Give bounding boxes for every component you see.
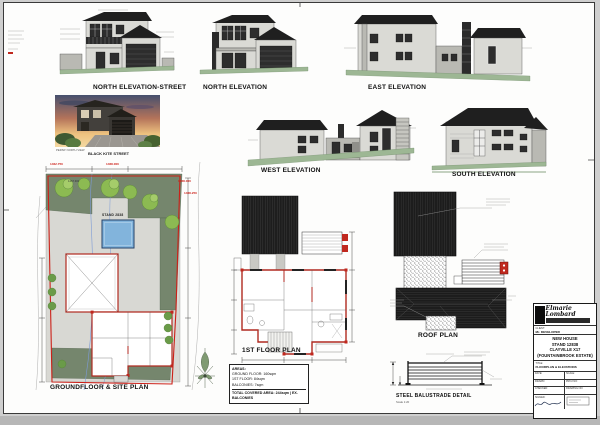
roof-plan-drawing xyxy=(388,188,518,333)
field-label: DRAWN: xyxy=(535,380,563,383)
field-label: PROJ NO: xyxy=(566,380,595,383)
label-roof-plan: ROOF PLAN xyxy=(418,332,458,339)
field-label: DATE: xyxy=(535,372,563,375)
areas-line: BALCONIES: 7sqm xyxy=(232,383,306,388)
project-line: (FOUNTAINBROOK ESTATE) xyxy=(534,353,596,359)
east-elevation-drawing xyxy=(342,8,534,88)
field-label: SCALE: xyxy=(566,372,595,375)
label-balustrade-detail: STEEL BALUSTRADE DETAIL xyxy=(396,393,472,399)
logo-subtext-bars xyxy=(546,318,597,323)
client-name: Mr. DEVELOPER xyxy=(536,330,560,334)
site-plan-drawing: STAND 2838 1462.750 1468.000 1 xyxy=(32,158,210,393)
logo-script-text: Elmarie Lombard xyxy=(546,306,597,318)
svg-text:1462.750: 1462.750 xyxy=(50,162,63,166)
north-arrow-icon xyxy=(192,346,218,390)
perspective-render-photo xyxy=(55,95,160,147)
project-row: NEW HOUSE STAND 12838 CLAYVILLE X17 (FOU… xyxy=(534,335,596,361)
title-block-fields: DATE: SCALE: DRAWN: PROJ NO: CHECKED: DR… xyxy=(534,372,596,395)
label-south-elevation: SOUTH ELEVATION xyxy=(452,171,516,178)
client-row: CLIENT: Mr. DEVELOPER xyxy=(534,326,596,335)
street-name-label: BLACK KITE STREET xyxy=(88,151,129,156)
west-elevation-drawing xyxy=(246,98,418,170)
title-block-logo-row: Elmarie Lombard xyxy=(534,304,596,326)
field-label: DRAWING NO: xyxy=(566,387,595,390)
balustrade-scale-note: Scale 1:20 xyxy=(396,400,409,404)
label-east-elevation: EAST ELEVATION xyxy=(368,84,426,91)
areas-total: TOTAL COVERED AREA: 244sqm | EX. BALCONI… xyxy=(232,389,306,401)
svg-text:1468.250: 1468.250 xyxy=(184,191,197,195)
areas-schedule-box: AREAS: GROUND FLOOR: 160sqm 1ST FLOOR: 8… xyxy=(229,364,309,404)
margin-notes xyxy=(6,28,30,56)
title-block: Elmarie Lombard CLIENT: Mr. DEVELOPER NE… xyxy=(533,303,597,419)
svg-text:1468.000: 1468.000 xyxy=(106,162,119,166)
north-elevation-drawing xyxy=(196,12,314,86)
sheet-title-value: FLOORPLAN & ELEVATIONS xyxy=(536,365,577,369)
svg-text:STAND 2838: STAND 2838 xyxy=(102,213,123,217)
label-west-elevation: WEST ELEVATION xyxy=(261,167,321,174)
label-first-floor-plan: 1ST FLOOR PLAN xyxy=(242,347,301,354)
signature-scribble xyxy=(534,400,562,408)
svg-text:1468.000: 1468.000 xyxy=(178,179,191,183)
svg-text:1467.300: 1467.300 xyxy=(68,179,80,183)
sheet-title-row: TITLE: FLOORPLAN & ELEVATIONS xyxy=(534,361,596,372)
signature-row: SIGNED: xyxy=(534,395,596,409)
label-north-elevation: NORTH ELEVATION xyxy=(203,84,267,91)
drawing-sheet-canvas: NORTH ELEVATION-STREET NORTH ELEVATION xyxy=(0,0,600,425)
scanner-edge-band xyxy=(0,416,600,425)
balustrade-detail-drawing xyxy=(386,350,504,392)
south-elevation-drawing xyxy=(428,100,550,176)
north-elevation-street-drawing xyxy=(58,8,176,86)
first-floor-plan-drawing xyxy=(228,192,356,364)
approval-box xyxy=(566,396,590,406)
logo-mark xyxy=(535,306,545,324)
label-site-plan: GROUNDFLOOR & SITE PLAN xyxy=(50,384,149,391)
photo-caption: PERSP. NORTH VIEW xyxy=(56,148,85,152)
label-north-elevation-street: NORTH ELEVATION-STREET xyxy=(93,84,186,91)
field-label: CHECKED: xyxy=(535,387,563,390)
